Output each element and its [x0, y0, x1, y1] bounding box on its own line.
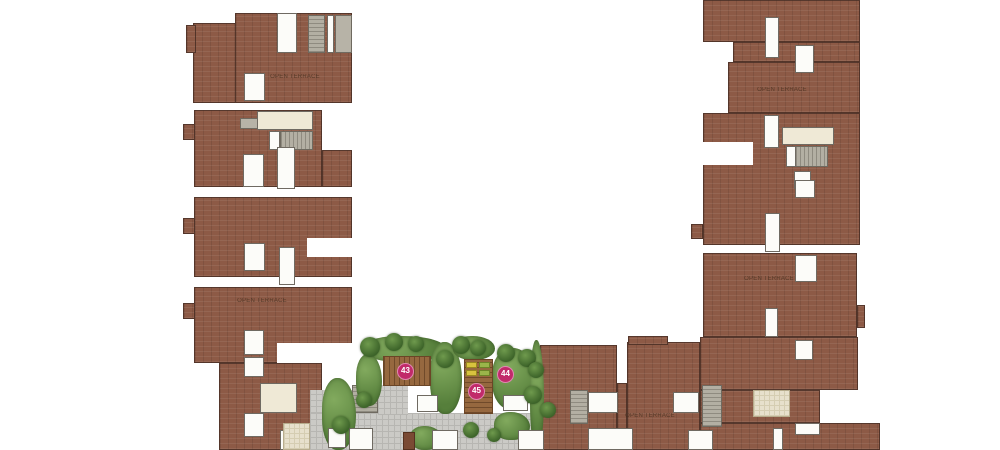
- pavilion-room: [260, 383, 297, 413]
- open-terrace-label: OPEN TERRACE: [744, 276, 794, 282]
- terrace-room: [279, 247, 295, 285]
- terrace-room: [795, 45, 814, 73]
- stair-lobby-room: [277, 13, 297, 53]
- right-wing-terrace: [703, 0, 860, 42]
- terrace-notch: [307, 238, 353, 257]
- terrace-room: [244, 413, 264, 437]
- terrace-room: [765, 213, 780, 252]
- right-wing-terrace: [703, 253, 857, 337]
- amenity-room: [432, 430, 458, 450]
- terrace-room: [244, 357, 264, 377]
- tree: [385, 333, 403, 351]
- tree: [452, 336, 470, 354]
- terrace-room: [673, 392, 699, 413]
- left-wing-balcony: [186, 25, 196, 53]
- lounger: [466, 362, 477, 368]
- right-wing-terrace: [700, 337, 858, 390]
- terrace-room: [243, 154, 264, 187]
- terrace-room: [795, 255, 817, 282]
- staircase: [702, 385, 722, 427]
- left-wing-terrace: [193, 23, 240, 103]
- terrace-room: [244, 73, 265, 101]
- tree: [524, 386, 542, 404]
- left-wing-balcony: [183, 303, 195, 319]
- staircase: [570, 390, 588, 424]
- left-wing-terrace: [322, 150, 352, 187]
- amenity-room: [417, 395, 438, 412]
- terrace-room: [795, 180, 815, 198]
- staircase: [308, 15, 325, 53]
- paver-walkway: [378, 385, 408, 415]
- tree: [487, 428, 501, 442]
- amenity-marker-45: 45: [468, 383, 485, 400]
- terrace-room: [764, 115, 779, 148]
- planter-box: [403, 432, 415, 450]
- terrace-room: [773, 428, 783, 450]
- left-wing-terrace: [194, 197, 352, 277]
- tree: [470, 340, 486, 356]
- tree: [436, 350, 454, 368]
- lounger: [479, 370, 490, 376]
- terrace-room: [588, 428, 633, 450]
- tree: [463, 422, 479, 438]
- lounger: [466, 370, 477, 376]
- tree: [540, 402, 556, 418]
- floor-plan-canvas: OPEN TERRACE OPEN TERRACE OPEN TERRACE O…: [0, 0, 1000, 450]
- right-wing-balcony: [691, 224, 703, 239]
- tree: [356, 392, 372, 408]
- tree: [528, 362, 544, 378]
- lift-lobby: [782, 127, 834, 145]
- lift-shaft: [786, 146, 796, 167]
- tree: [408, 336, 424, 352]
- terrace-notch: [703, 142, 753, 165]
- left-wing-balcony: [183, 124, 195, 140]
- left-wing-balcony: [183, 218, 195, 234]
- terrace-notch: [277, 343, 353, 363]
- open-terrace-label: OPEN TERRACE: [757, 87, 807, 93]
- seating-patio: [283, 423, 310, 450]
- terrace-room: [277, 147, 295, 189]
- amenity-room: [518, 430, 544, 450]
- lift-shaft: [240, 118, 258, 129]
- lift-machine-room: [335, 15, 352, 53]
- terrace-room: [765, 17, 779, 58]
- right-wing-terrace: [700, 423, 880, 450]
- terrace-room: [795, 423, 820, 435]
- right-wing-balcony: [857, 305, 865, 328]
- terrace-room: [688, 430, 713, 450]
- open-terrace-label: OPEN TERRACE: [270, 74, 320, 80]
- open-terrace-label: OPEN TERRACE: [625, 413, 675, 419]
- lounger: [479, 362, 490, 368]
- tree: [360, 337, 380, 357]
- open-terrace-label: OPEN TERRACE: [237, 298, 287, 304]
- staircase: [791, 146, 828, 167]
- terrace-room: [795, 340, 813, 360]
- lift-shaft: [327, 15, 334, 53]
- center-terrace: [628, 336, 668, 345]
- tree: [497, 344, 515, 362]
- amenity-marker-44: 44: [497, 366, 514, 383]
- terrace-room: [244, 330, 264, 355]
- terrace-room: [588, 392, 618, 413]
- tiled-pavilion: [753, 390, 790, 417]
- lift-lobby: [257, 111, 313, 130]
- tree: [332, 416, 350, 434]
- terrace-room: [244, 243, 265, 271]
- amenity-marker-43: 43: [397, 363, 414, 380]
- amenity-room: [349, 428, 373, 450]
- terrace-room: [765, 308, 778, 337]
